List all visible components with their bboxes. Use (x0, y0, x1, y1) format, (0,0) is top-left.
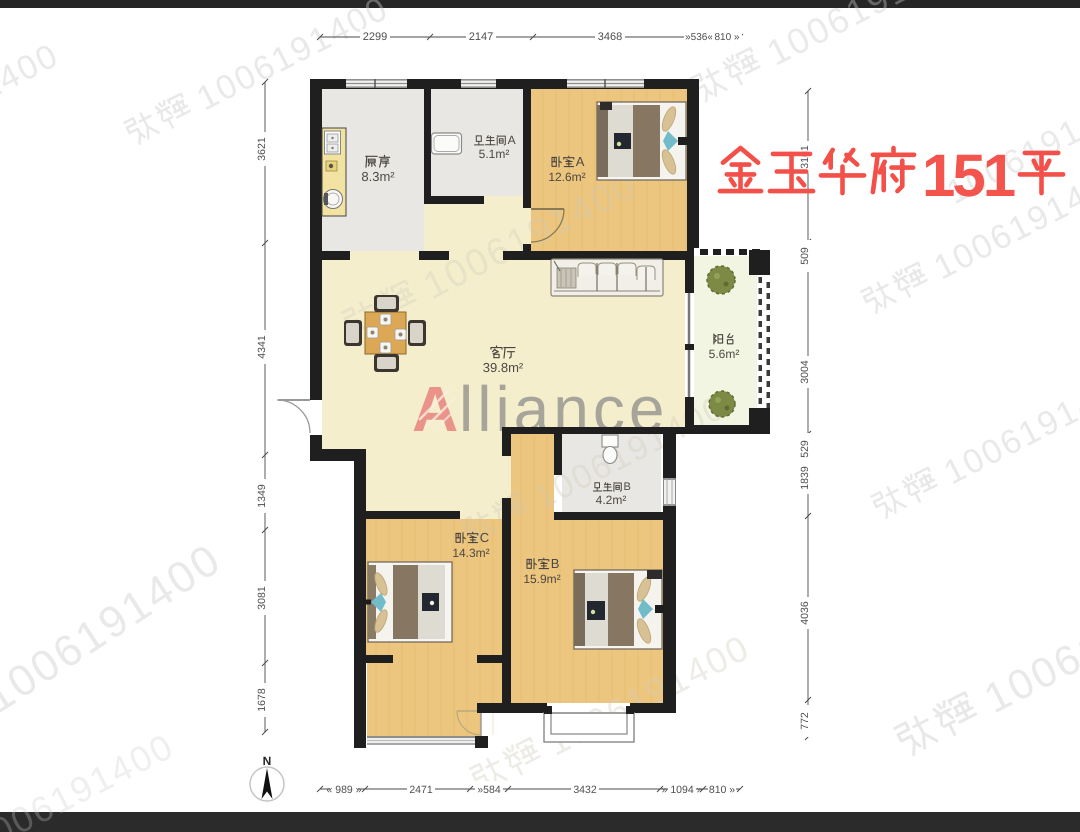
svg-text:1678: 1678 (256, 688, 268, 712)
svg-text:509: 509 (799, 247, 811, 265)
svg-text:4341: 4341 (256, 335, 268, 359)
svg-text:810 »: 810 » (709, 784, 735, 796)
svg-text:2471: 2471 (409, 784, 433, 796)
svg-text:N: N (263, 754, 272, 768)
svg-text:B: B (551, 556, 560, 571)
svg-text:3621: 3621 (256, 137, 268, 161)
svg-text:»536«: »536« (685, 32, 713, 43)
svg-text:3161: 3161 (799, 145, 811, 169)
svg-text:3004: 3004 (799, 360, 811, 384)
svg-text:2299: 2299 (363, 31, 387, 43)
svg-text:529: 529 (799, 440, 811, 458)
svg-text:1349: 1349 (256, 484, 268, 508)
svg-text:B: B (624, 481, 631, 493)
svg-text:4036: 4036 (799, 601, 811, 625)
svg-text:39.8m²: 39.8m² (483, 360, 524, 375)
svg-text:A: A (412, 373, 461, 445)
svg-text:5.6m²: 5.6m² (709, 347, 740, 361)
svg-text:A: A (508, 133, 516, 147)
svg-text:» 1094 »: » 1094 » (662, 784, 703, 796)
svg-text:5.1m²: 5.1m² (479, 147, 510, 161)
svg-text:2147: 2147 (469, 31, 493, 43)
svg-text:772: 772 (799, 712, 811, 730)
svg-text:151: 151 (922, 142, 1015, 209)
svg-text:»584: »584 (477, 784, 501, 796)
svg-text:3432: 3432 (573, 784, 597, 796)
svg-text:« 989 »: « 989 » (326, 784, 361, 796)
svg-text:15.9m²: 15.9m² (523, 572, 560, 586)
svg-text:C: C (480, 530, 489, 545)
svg-text:8.3m²: 8.3m² (361, 169, 395, 184)
svg-text:A: A (576, 154, 585, 169)
svg-text:3468: 3468 (598, 31, 622, 43)
svg-text:4.2m²: 4.2m² (596, 493, 627, 507)
svg-text:lliance: lliance (459, 373, 668, 445)
svg-text:14.3m²: 14.3m² (452, 546, 489, 560)
svg-text:1839: 1839 (799, 466, 811, 490)
svg-text:810 »: 810 » (714, 32, 739, 43)
svg-text:12.6m²: 12.6m² (548, 170, 585, 184)
svg-text:3081: 3081 (256, 586, 268, 610)
